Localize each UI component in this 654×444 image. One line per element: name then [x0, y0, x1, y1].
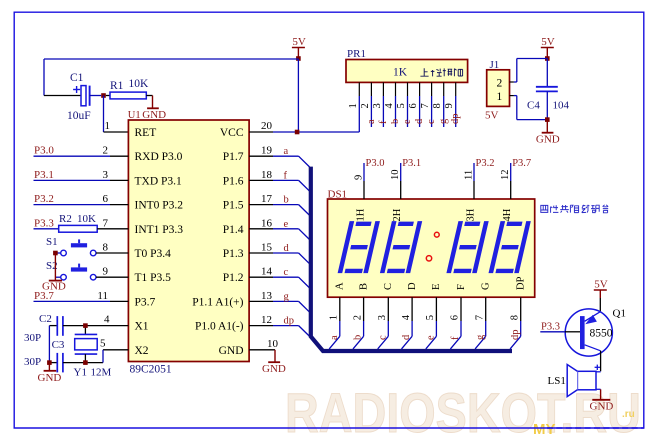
svg-text:18: 18 [261, 169, 273, 181]
svg-text:P3.3: P3.3 [34, 217, 54, 229]
svg-text:d: d [284, 243, 290, 254]
svg-text:a: a [329, 335, 340, 340]
svg-text:P3.2: P3.2 [476, 158, 495, 169]
svg-text:RET: RET [135, 127, 157, 139]
svg-text:f: f [378, 120, 389, 124]
svg-text:2: 2 [360, 103, 371, 108]
svg-text:B: B [358, 283, 369, 290]
svg-text:8550: 8550 [590, 328, 613, 340]
svg-text:GND: GND [219, 345, 244, 357]
svg-text:F: F [456, 284, 467, 290]
svg-text:8: 8 [509, 315, 520, 320]
svg-text:10K: 10K [129, 78, 150, 90]
svg-text:dp: dp [510, 330, 521, 341]
svg-text:1: 1 [348, 103, 359, 108]
svg-text:Q1: Q1 [613, 308, 626, 320]
svg-text:P1.1 A1(+): P1.1 A1(+) [192, 296, 243, 308]
svg-text:d: d [401, 334, 412, 340]
svg-text:b: b [353, 335, 364, 340]
svg-text:RXD P3.0: RXD P3.0 [135, 151, 183, 163]
svg-text:S1: S1 [46, 236, 58, 248]
svg-text:P3.0: P3.0 [34, 145, 54, 157]
svg-text:b: b [390, 119, 401, 124]
svg-text:P1.2: P1.2 [223, 272, 244, 284]
svg-text:7: 7 [420, 103, 431, 108]
svg-text:16: 16 [261, 217, 273, 229]
svg-text:P3.7: P3.7 [135, 296, 156, 308]
svg-text:C1: C1 [70, 72, 84, 84]
svg-text:104: 104 [553, 100, 570, 112]
svg-text:C3: C3 [52, 339, 65, 351]
svg-text:5: 5 [396, 103, 407, 108]
svg-text:D: D [407, 282, 418, 290]
svg-text:P3.2: P3.2 [34, 193, 54, 205]
svg-text:g: g [438, 118, 449, 124]
svg-text:10uF: 10uF [67, 110, 91, 122]
svg-text:1: 1 [329, 315, 340, 320]
svg-text:C: C [383, 283, 394, 290]
svg-text:a: a [284, 146, 289, 157]
svg-text:4: 4 [401, 314, 412, 320]
svg-text:5V: 5V [292, 36, 306, 48]
svg-text:a: a [366, 119, 377, 124]
svg-text:11: 11 [463, 170, 474, 180]
svg-text:4: 4 [104, 314, 110, 326]
svg-text:3: 3 [377, 315, 388, 320]
svg-text:7: 7 [474, 315, 485, 320]
svg-text:9: 9 [353, 175, 364, 180]
svg-text:f: f [450, 336, 461, 340]
svg-text:4: 4 [384, 103, 395, 109]
svg-text:g: g [284, 291, 290, 302]
svg-text:C2: C2 [39, 313, 52, 325]
svg-text:P1.0 A1(-): P1.0 A1(-) [195, 321, 244, 333]
svg-text:Y1: Y1 [74, 367, 87, 379]
svg-text:e: e [426, 335, 437, 340]
svg-text:INT1 P3.3: INT1 P3.3 [135, 224, 184, 236]
svg-text:INT0 P3.2: INT0 P3.2 [135, 200, 184, 212]
svg-text:A: A [335, 282, 346, 290]
svg-text:10: 10 [267, 338, 279, 350]
svg-text:8: 8 [103, 242, 109, 254]
svg-text:P3.1: P3.1 [402, 158, 421, 169]
svg-text:P3.0: P3.0 [366, 158, 385, 169]
svg-text:G: G [481, 282, 492, 290]
svg-text:5V: 5V [594, 279, 608, 291]
svg-text:P1.6: P1.6 [223, 175, 244, 187]
svg-text:12: 12 [500, 170, 511, 181]
svg-text:X2: X2 [135, 345, 149, 357]
svg-text:GND: GND [262, 363, 286, 375]
svg-text:5V: 5V [541, 36, 555, 48]
svg-text:10K: 10K [77, 213, 96, 225]
svg-text:12: 12 [261, 314, 272, 326]
svg-text:10: 10 [390, 170, 401, 181]
svg-text:P3.1: P3.1 [34, 169, 54, 181]
svg-text:c: c [426, 119, 437, 124]
svg-text:1: 1 [497, 91, 503, 103]
svg-text:11: 11 [97, 290, 108, 302]
svg-text:3: 3 [103, 169, 109, 181]
svg-text:c: c [284, 267, 289, 278]
svg-text:e: e [284, 219, 289, 230]
svg-text:1K: 1K [393, 67, 408, 79]
svg-text:X1: X1 [135, 321, 149, 333]
svg-text:8: 8 [432, 103, 443, 108]
svg-text:2: 2 [352, 315, 363, 320]
svg-text:g: g [475, 334, 486, 340]
svg-text:4H: 4H [502, 208, 513, 221]
svg-text:T0 P3.4: T0 P3.4 [135, 248, 172, 260]
svg-text:J1: J1 [490, 59, 500, 71]
svg-text:f: f [284, 170, 288, 181]
svg-text:20: 20 [261, 120, 273, 132]
svg-text:VCC: VCC [220, 127, 244, 139]
svg-text:5: 5 [100, 338, 106, 350]
svg-text:GND: GND [38, 372, 62, 384]
svg-text:GND: GND [536, 134, 560, 146]
svg-text:P3.7: P3.7 [34, 290, 54, 302]
svg-text:LS1: LS1 [548, 375, 566, 387]
svg-text:30P: 30P [24, 332, 41, 344]
svg-text:6: 6 [450, 315, 461, 320]
svg-text:E: E [431, 284, 442, 290]
svg-text:9: 9 [103, 266, 109, 278]
svg-text:DP: DP [516, 276, 527, 290]
svg-text:b: b [284, 195, 289, 206]
svg-text:GND: GND [590, 401, 614, 413]
svg-text:5: 5 [425, 315, 436, 320]
svg-text:2: 2 [497, 78, 503, 90]
svg-text:12M: 12M [91, 367, 112, 379]
svg-text:9: 9 [444, 103, 455, 108]
svg-text:T1 P3.5: T1 P3.5 [135, 272, 172, 284]
svg-text:R2: R2 [59, 213, 72, 225]
svg-text:19: 19 [261, 145, 273, 157]
svg-text:30P: 30P [24, 356, 41, 368]
svg-text:e: e [402, 119, 413, 124]
svg-text:2: 2 [103, 145, 109, 157]
svg-text:1H: 1H [356, 208, 367, 221]
svg-text:5V: 5V [485, 110, 499, 122]
svg-text:3H: 3H [466, 208, 477, 221]
svg-text:89C2051: 89C2051 [130, 364, 172, 376]
svg-text:6: 6 [103, 193, 109, 205]
svg-text:3: 3 [372, 103, 383, 108]
svg-text:c: c [377, 335, 388, 340]
svg-text:P1.7: P1.7 [223, 151, 244, 163]
svg-text:17: 17 [261, 193, 273, 205]
svg-text:dp: dp [284, 316, 295, 327]
svg-text:PR1: PR1 [347, 48, 366, 60]
svg-text:P1.5: P1.5 [223, 200, 244, 212]
svg-text:1: 1 [105, 120, 111, 132]
svg-text:2H: 2H [392, 208, 403, 221]
svg-text:C4: C4 [527, 100, 540, 112]
svg-text:P1.3: P1.3 [223, 248, 244, 260]
svg-text:15: 15 [261, 242, 273, 254]
svg-text:P1.4: P1.4 [223, 224, 244, 236]
svg-text:14: 14 [261, 266, 273, 278]
svg-text:P3.7: P3.7 [512, 158, 531, 169]
svg-text:TXD P3.1: TXD P3.1 [135, 175, 183, 187]
svg-text:13: 13 [261, 290, 273, 302]
svg-text:6: 6 [408, 103, 419, 108]
svg-text:P3.3: P3.3 [541, 322, 560, 333]
svg-text:7: 7 [103, 217, 109, 229]
svg-text:R1: R1 [110, 80, 124, 92]
svg-text:d: d [414, 118, 425, 124]
svg-text:dp: dp [450, 114, 461, 125]
